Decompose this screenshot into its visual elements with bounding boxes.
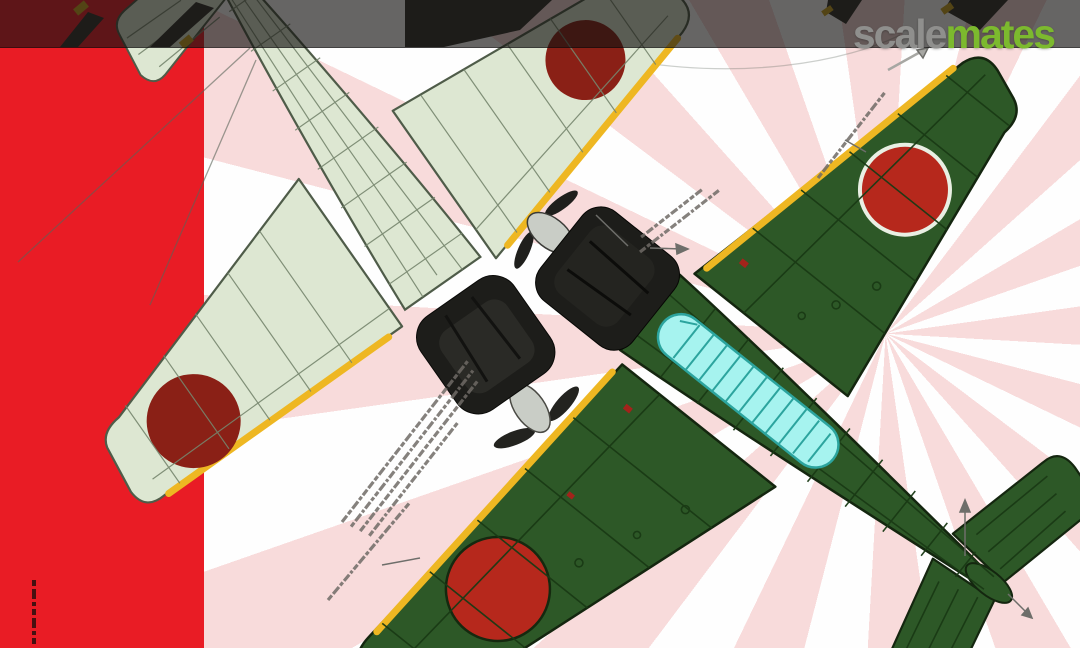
note-lower-left [328,502,410,600]
artwork-canvas: scalemates [0,0,1080,648]
scalemates-watermark: scalemates [853,14,1054,55]
watermark-scale-text: scale [853,11,946,57]
aircraft-artwork [0,0,1080,648]
watermark-mates-text: mates [945,11,1054,57]
